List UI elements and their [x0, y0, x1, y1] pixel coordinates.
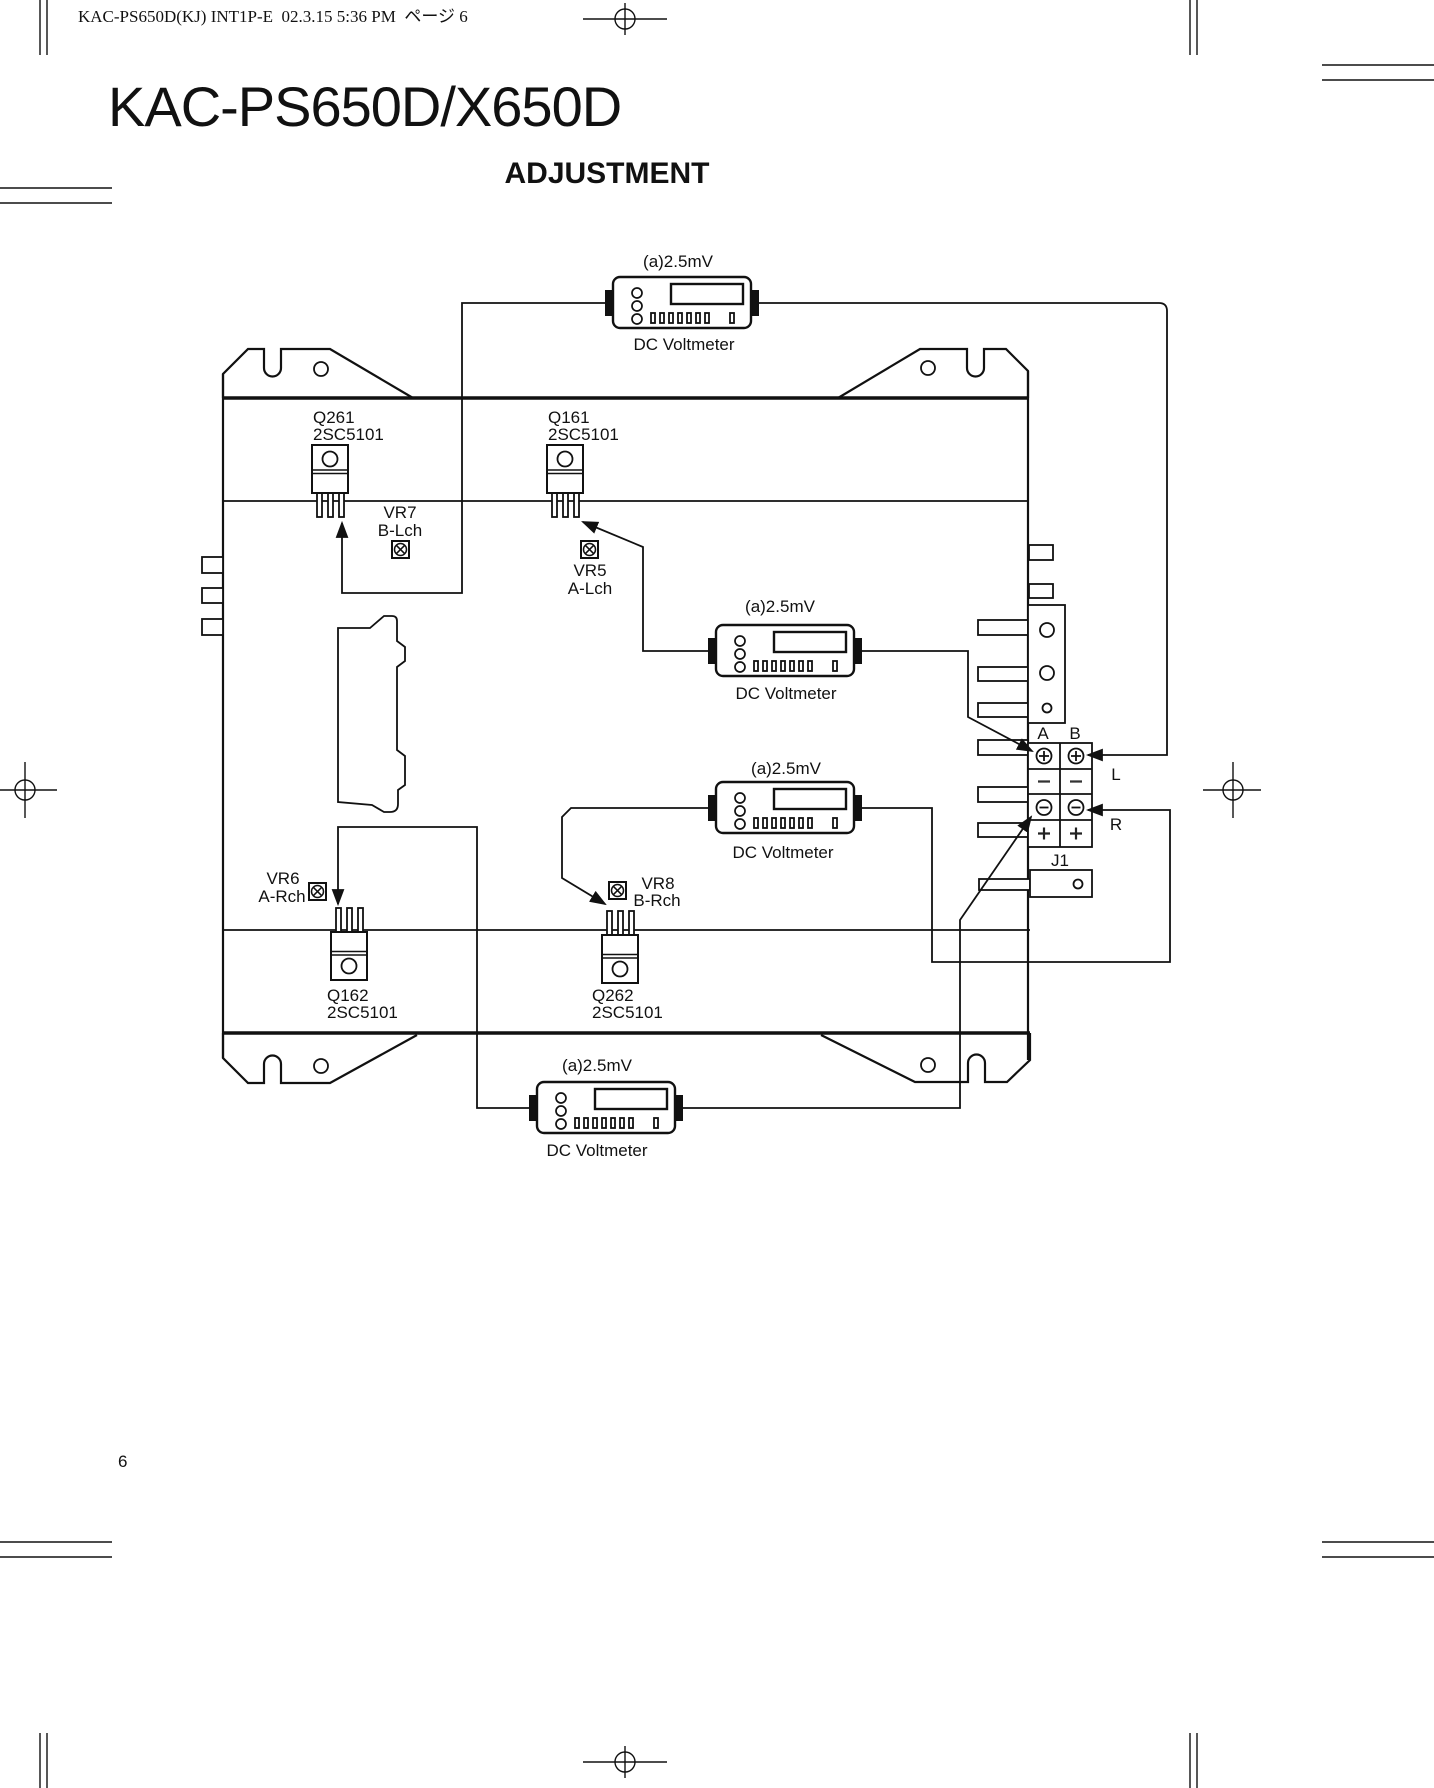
print-header: KAC-PS650D(KJ) INT1P-E 02.3.15 5:36 PM ペ… [78, 7, 468, 26]
dc-voltmeter-bottom [529, 1082, 683, 1133]
test-point-label: (a)2.5mV [745, 597, 816, 616]
dc-voltmeter-middle-upper [708, 625, 862, 676]
terminal-column-b: B [1069, 724, 1080, 743]
board-tab [1029, 584, 1053, 598]
terminal-column-a: A [1037, 724, 1049, 743]
trimmer-labels: VR7 B-Lch VR5 A-Lch VR6 A-Rch VR8 B-Rch [258, 503, 680, 910]
trimmer-ref: VR5 [573, 561, 606, 580]
wire-vm3-to-vr8 [562, 808, 709, 904]
trimmer-channel: A-Rch [258, 887, 305, 906]
wire-vm2-to-terminal-A-plus [860, 651, 1032, 751]
page-title: KAC-PS650D/X650D [108, 75, 621, 138]
part-number: 2SC5101 [592, 1003, 663, 1022]
speaker-terminal-block [1028, 743, 1092, 847]
pin-header [978, 703, 1028, 717]
voltmeter-label: DC Voltmeter [546, 1141, 647, 1160]
service-manual-page: KAC-PS650D(KJ) INT1P-E 02.3.15 5:36 PM ペ… [0, 0, 1434, 1788]
adjustment-diagram: KAC-PS650D(KJ) INT1P-E 02.3.15 5:36 PM ペ… [0, 0, 1434, 1788]
mount-hole [921, 1058, 935, 1072]
channel-left-label: L [1111, 765, 1120, 784]
trimmer-vr8-icon [609, 882, 626, 899]
board-wing-bottom-left [223, 1033, 417, 1083]
registration-target-left [0, 762, 57, 818]
trimmer-ref: VR7 [383, 503, 416, 522]
voltmeter-label: DC Voltmeter [735, 684, 836, 703]
pin-header [978, 667, 1028, 681]
page-number: 6 [118, 1452, 127, 1471]
trimmer-vr6-icon [309, 883, 326, 900]
board-tab [202, 619, 223, 635]
voltmeter-labels: (a)2.5mV DC Voltmeter (a)2.5mV DC Voltme… [546, 252, 836, 1160]
trimmer-ref: VR6 [266, 869, 299, 888]
test-point-label: (a)2.5mV [751, 759, 822, 778]
board-cutout [338, 616, 405, 812]
trimmer-channel: B-Lch [378, 521, 422, 540]
part-number: 2SC5101 [548, 425, 619, 444]
part-number: 2SC5101 [327, 1003, 398, 1022]
part-number: 2SC5101 [313, 425, 384, 444]
board-tab [202, 588, 223, 603]
trimmer-vr7-icon [392, 541, 409, 558]
transistor-q162 [331, 908, 367, 980]
board-wing-top-left [223, 349, 413, 398]
pin-header [978, 787, 1028, 802]
registration-target-bottom [583, 1746, 667, 1778]
mount-hole [921, 361, 935, 375]
dc-voltmeter-middle-lower [708, 782, 862, 833]
registration-target-right [1203, 762, 1261, 818]
crop-marks [0, 0, 1434, 1788]
pin-header [978, 620, 1028, 635]
trimmer-channel: A-Lch [568, 579, 612, 598]
pin-header [978, 740, 1028, 755]
pin-header [978, 823, 1028, 837]
voltmeter-label: DC Voltmeter [732, 843, 833, 862]
mount-hole [314, 1059, 328, 1073]
channel-right-label: R [1110, 815, 1122, 834]
test-point-label: (a)2.5mV [643, 252, 714, 271]
board-tab [1029, 545, 1053, 560]
dc-voltmeter-top [605, 277, 759, 328]
transistor-q262 [602, 911, 638, 983]
registration-target-top [583, 3, 667, 35]
trimmer-channel: B-Rch [633, 891, 680, 910]
test-point-label: (a)2.5mV [562, 1056, 633, 1075]
board-tab [202, 557, 223, 573]
trimmer-vr5-icon [581, 541, 598, 558]
board-wing-bottom-right [821, 1033, 1030, 1082]
transistor-q161 [547, 445, 583, 517]
voltmeter-label: DC Voltmeter [633, 335, 734, 354]
transistor-q261 [312, 445, 348, 517]
mount-hole [314, 362, 328, 376]
j1-label: J1 [1051, 851, 1069, 870]
right-edge-connectors [978, 545, 1092, 897]
section-heading: ADJUSTMENT [504, 157, 709, 190]
